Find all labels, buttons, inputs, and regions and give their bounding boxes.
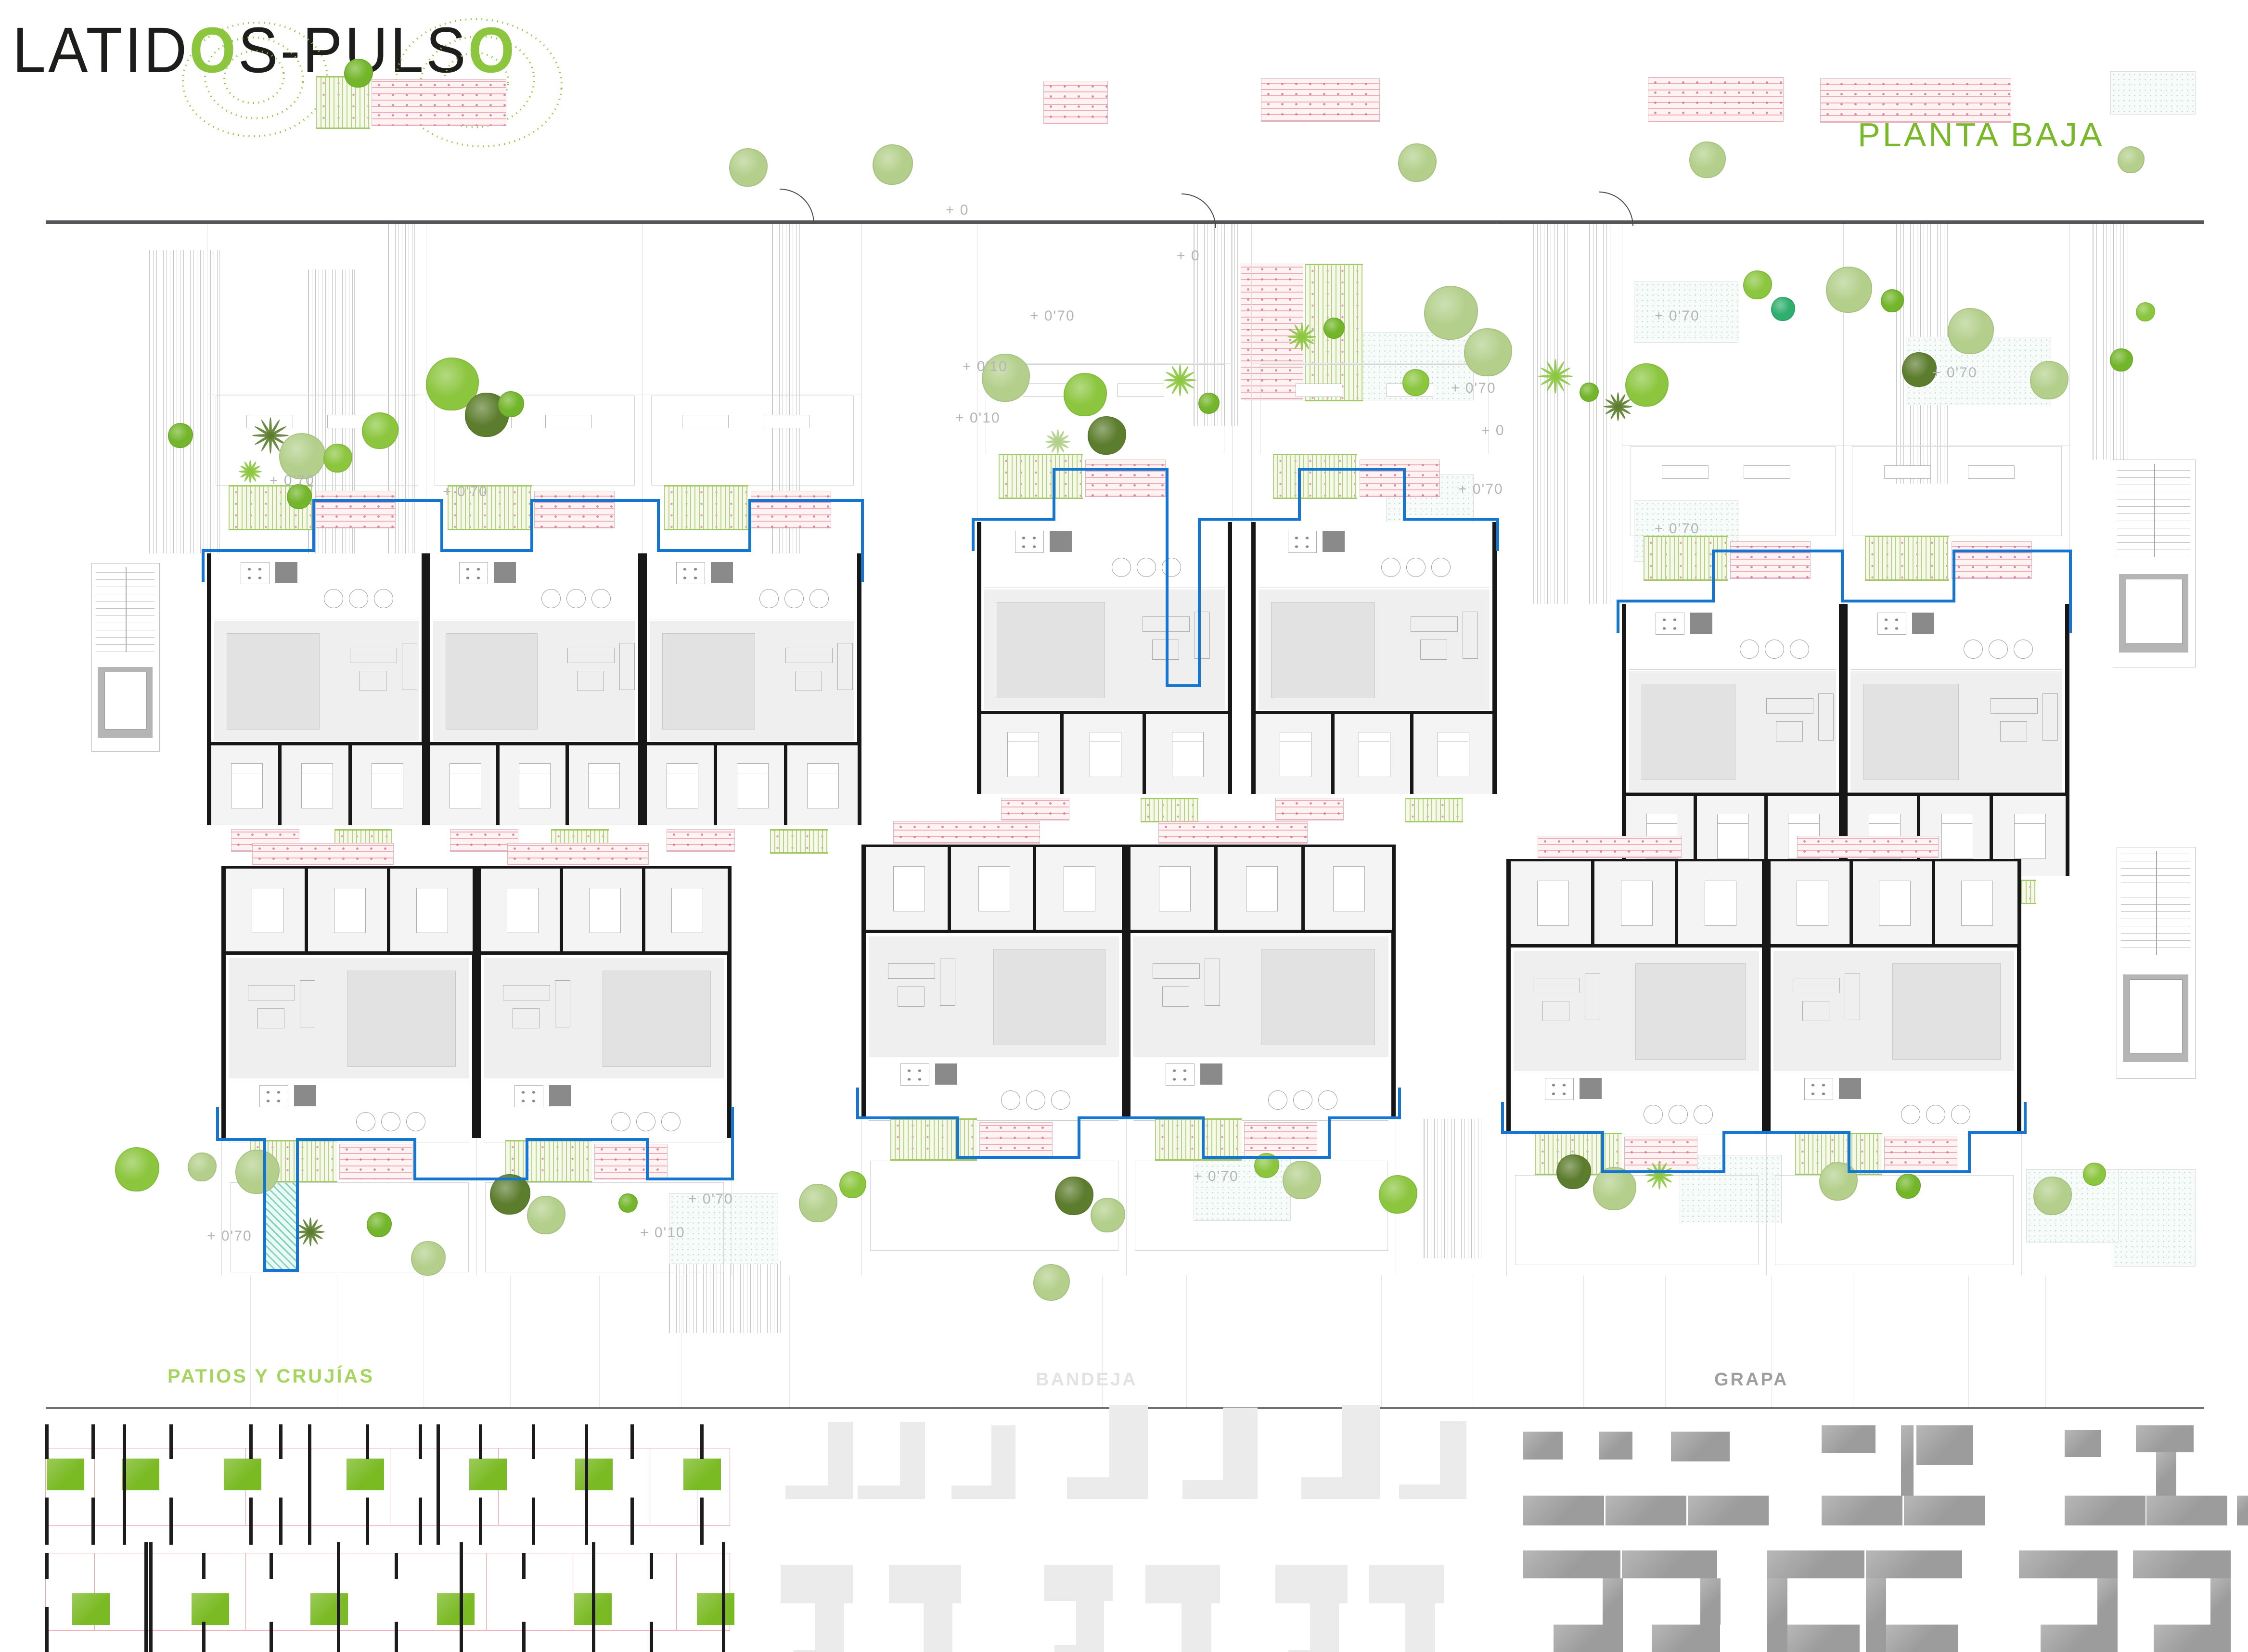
grapa-shape [1671, 1432, 1730, 1461]
grapa-shape [2237, 1496, 2248, 1525]
blue-threshold-line [1618, 551, 2070, 633]
patio-green-cell [347, 1459, 384, 1490]
grapa-shape [1916, 1425, 1973, 1465]
bandeja-shape-bar [991, 1425, 1015, 1486]
grapa-shape [1866, 1550, 1962, 1578]
bandeja-shape-bar [1310, 1603, 1339, 1652]
crujia-wall-line [91, 1498, 95, 1545]
patio-green-cell [437, 1593, 475, 1625]
crujia-wall-line [460, 1542, 463, 1652]
bandeja-shape-bar [1342, 1405, 1380, 1477]
bandeja-shape-head [889, 1565, 961, 1603]
crujia-wall-line [650, 1622, 653, 1652]
bandeja-shape-bar [1405, 1603, 1435, 1652]
crujia-wall-line [45, 1498, 49, 1545]
grapa-shape [1822, 1425, 1875, 1453]
patio-green-cell [192, 1593, 229, 1625]
bandeja-shape-foot [785, 1486, 853, 1499]
crujia-wall-line [437, 1424, 440, 1545]
crujia-wall-line [169, 1498, 173, 1545]
bandeja-shape-foot [1182, 1480, 1258, 1499]
crujia-wall-line [395, 1553, 398, 1579]
grapa-shape [1523, 1432, 1563, 1460]
blue-threshold-line [858, 1088, 1400, 1157]
bandeja-shape-bar [1182, 1603, 1211, 1652]
bandeja-shape-bar [1440, 1421, 1466, 1485]
crujia-wall-line [592, 1542, 595, 1652]
patio-green-cell [697, 1593, 734, 1625]
crujia-wall-line [249, 1498, 253, 1545]
crujia-wall-line [479, 1498, 482, 1545]
patio-green-cell [683, 1459, 721, 1490]
grapa-shape [1554, 1625, 1623, 1652]
crujia-wall-line [279, 1424, 283, 1459]
patios-frame-divider [390, 1448, 390, 1525]
patio-green-cell [469, 1459, 507, 1490]
crujia-wall-line [279, 1498, 283, 1545]
crujia-wall-line [91, 1424, 95, 1459]
crujia-wall-line [700, 1424, 704, 1459]
patios-frame [45, 1553, 730, 1631]
grapa-shape [1603, 1578, 1623, 1625]
patio-green-cell [72, 1593, 110, 1625]
crujia-wall-line [419, 1424, 422, 1459]
patio-green-cell [122, 1459, 159, 1490]
grapa-shape [1523, 1496, 1604, 1525]
crujia-wall-line [395, 1622, 398, 1652]
patios-frame-divider [245, 1553, 246, 1630]
grapa-shape [2041, 1625, 2118, 1652]
bandeja-shape-bar [828, 1422, 853, 1486]
section-label-bandeja: BANDEJA [1036, 1370, 1138, 1390]
bandeja-shape-head [1369, 1565, 1444, 1603]
patio-green-cell [224, 1459, 261, 1490]
crujia-wall-line [270, 1622, 273, 1652]
plan-sheet: LATIDOS-PULSO PLANTA BAJA + 0+ 0+ 0+ 0'7… [0, 0, 2248, 1652]
patios-frame-divider [676, 1553, 677, 1630]
grapa-shape [1767, 1550, 1864, 1578]
grapa-shape [2019, 1550, 2118, 1578]
crujia-wall-line [585, 1424, 588, 1545]
grapa-shape [1606, 1496, 1686, 1525]
crujia-wall-line [249, 1424, 253, 1459]
grapa-shape [2154, 1625, 2231, 1652]
bandeja-shape-bar [1109, 1405, 1148, 1477]
blue-threshold-line [973, 469, 1498, 686]
crujia-wall-line [45, 1424, 49, 1459]
crujia-wall-line [532, 1498, 535, 1545]
crujia-wall-line [202, 1553, 206, 1579]
grapa-shape [2065, 1430, 2101, 1457]
blue-boundary-overlay [0, 0, 2248, 1652]
bandeja-shape-foot [1288, 1650, 1339, 1652]
bandeja-shape-bar [1076, 1601, 1104, 1652]
bandeja-shape-foot [1399, 1485, 1466, 1499]
crujia-wall-line [366, 1498, 369, 1545]
bandeja-shape-foot [1067, 1477, 1148, 1499]
blue-threshold-line [218, 1107, 732, 1270]
crujia-wall-line [630, 1498, 634, 1545]
grapa-shape [2146, 1496, 2227, 1525]
crujia-wall-line [700, 1498, 704, 1545]
bandeja-shape-bar [900, 1422, 925, 1486]
grapa-shape [1822, 1496, 1902, 1525]
grapa-shape [1700, 1578, 1721, 1625]
bandeja-shape-foot [1054, 1645, 1104, 1652]
grapa-shape [1523, 1550, 1620, 1578]
crujia-wall-line [532, 1424, 535, 1459]
grapa-shape [1622, 1550, 1717, 1578]
crujia-wall-line [144, 1542, 148, 1652]
crujia-wall-line [650, 1553, 653, 1579]
patios-frame-divider [650, 1448, 650, 1525]
grapa-shape [2210, 1578, 2231, 1625]
bandeja-shape-foot [951, 1486, 1015, 1499]
crujia-wall-line [149, 1542, 153, 1652]
patios-frame-divider [486, 1553, 487, 1630]
crujia-wall-line [45, 1607, 49, 1652]
crujia-wall-line [270, 1553, 273, 1579]
grapa-shape [1652, 1625, 1720, 1652]
bandeja-shape-head [1275, 1565, 1348, 1603]
crujia-wall-line [722, 1542, 725, 1652]
blue-threshold-line [203, 500, 862, 582]
grapa-shape [1767, 1578, 1787, 1652]
grapa-shape [2065, 1496, 2145, 1525]
grapa-shape [1688, 1496, 1769, 1525]
crujia-wall-line [479, 1424, 482, 1459]
crujia-wall-line [169, 1424, 173, 1459]
crujia-wall-line [522, 1622, 526, 1652]
grapa-shape [1904, 1496, 1985, 1525]
section-label-grapa: GRAPA [1714, 1370, 1788, 1390]
grapa-shape [1787, 1625, 1860, 1652]
patio-green-cell [47, 1459, 84, 1490]
bandeja-shape-bar [924, 1603, 952, 1652]
crujia-wall-line [337, 1542, 340, 1652]
crujia-wall-line [308, 1424, 311, 1545]
grapa-shape [1866, 1578, 1886, 1652]
patio-green-cell [575, 1459, 613, 1490]
grapa-shape [1599, 1432, 1632, 1460]
bandeja-shape-head [1044, 1565, 1113, 1601]
bandeja-shape-bar [815, 1603, 844, 1652]
grapa-shape [2136, 1425, 2194, 1452]
grapa-shape [2097, 1578, 2118, 1625]
crujia-wall-line [366, 1424, 369, 1459]
patios-frame-divider [573, 1553, 573, 1630]
bandeja-shape-foot [1301, 1477, 1380, 1499]
bandeja-shape-bar [1223, 1408, 1258, 1480]
grapa-shape [1901, 1425, 1914, 1496]
grapa-shape [2156, 1452, 2176, 1496]
crujia-wall-line [522, 1553, 526, 1579]
crujia-wall-line [202, 1622, 206, 1652]
bandeja-shape-head [1145, 1565, 1220, 1603]
patio-green-cell [310, 1593, 348, 1625]
section-label-patios: PATIOS Y CRUJÍAS [167, 1366, 374, 1387]
crujia-wall-line [630, 1424, 634, 1459]
grapa-shape [1886, 1625, 1958, 1652]
grapa-shape [2133, 1550, 2231, 1578]
crujia-wall-line [123, 1424, 126, 1545]
crujia-wall-line [419, 1498, 422, 1545]
bandeja-shape-head [781, 1565, 853, 1603]
bandeja-shape-foot [794, 1650, 844, 1652]
bandeja-shape-foot [858, 1486, 925, 1499]
blue-threshold-line [1503, 1102, 2025, 1172]
crujia-wall-line [45, 1553, 49, 1579]
